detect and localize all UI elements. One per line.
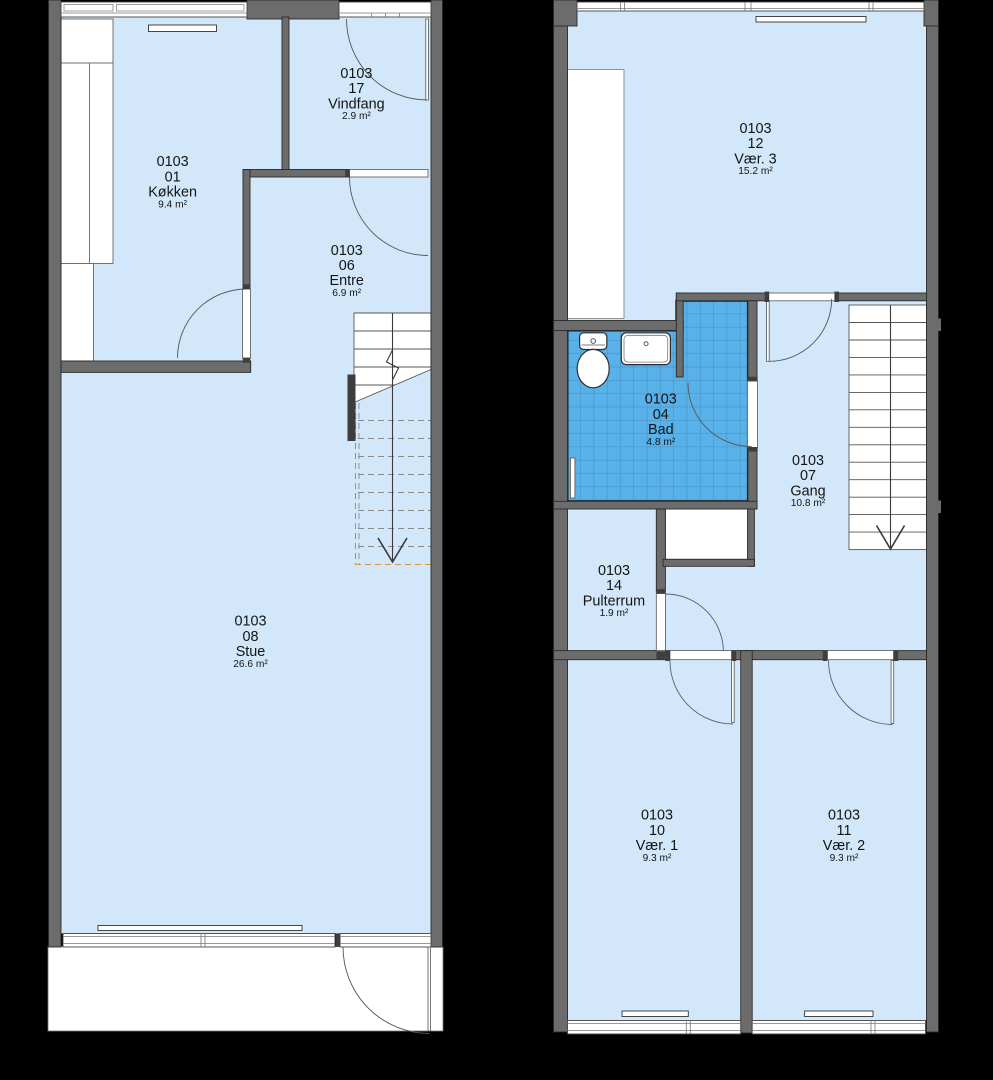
svg-text:Bad: Bad <box>648 422 674 438</box>
svg-text:04: 04 <box>653 407 669 423</box>
svg-text:Gang: Gang <box>790 483 825 499</box>
svg-text:0103: 0103 <box>340 66 372 82</box>
svg-text:06: 06 <box>339 258 355 274</box>
svg-text:11: 11 <box>837 823 852 839</box>
svg-text:0103: 0103 <box>157 154 189 170</box>
svg-text:Køkken: Køkken <box>148 185 197 201</box>
svg-text:17: 17 <box>348 81 364 97</box>
svg-text:08: 08 <box>242 629 258 645</box>
svg-text:2.9 m²: 2.9 m² <box>342 111 371 122</box>
svg-text:0103: 0103 <box>792 453 824 469</box>
svg-text:9.3 m²: 9.3 m² <box>643 853 672 864</box>
svg-text:1.9 m²: 1.9 m² <box>600 608 629 619</box>
svg-text:9.3 m²: 9.3 m² <box>830 853 859 864</box>
svg-text:Pulterrum: Pulterrum <box>583 593 645 609</box>
svg-text:15.2 m²: 15.2 m² <box>738 166 773 177</box>
svg-text:0103: 0103 <box>828 808 860 824</box>
svg-text:07: 07 <box>800 468 816 484</box>
svg-text:0103: 0103 <box>739 121 771 137</box>
svg-text:0103: 0103 <box>641 808 673 824</box>
svg-text:10.8 m²: 10.8 m² <box>791 498 826 509</box>
svg-text:0103: 0103 <box>645 392 677 408</box>
svg-text:01: 01 <box>165 169 181 185</box>
svg-text:26.6 m²: 26.6 m² <box>233 659 268 670</box>
svg-text:4.8 m²: 4.8 m² <box>646 437 675 448</box>
svg-text:Entre: Entre <box>329 273 363 289</box>
svg-text:Vindfang: Vindfang <box>328 96 385 112</box>
svg-text:12: 12 <box>747 136 763 152</box>
svg-text:Vær. 2: Vær. 2 <box>823 838 865 854</box>
svg-text:14: 14 <box>606 578 622 594</box>
svg-text:0103: 0103 <box>331 243 363 259</box>
svg-text:10: 10 <box>649 823 665 839</box>
svg-text:9.4 m²: 9.4 m² <box>158 199 187 210</box>
svg-text:6.9 m²: 6.9 m² <box>332 288 361 299</box>
svg-text:Stue: Stue <box>236 644 266 660</box>
svg-text:0103: 0103 <box>234 614 266 630</box>
svg-text:Vær. 1: Vær. 1 <box>636 838 678 854</box>
svg-text:0103: 0103 <box>598 563 630 579</box>
svg-text:Vær. 3: Vær. 3 <box>734 151 776 167</box>
